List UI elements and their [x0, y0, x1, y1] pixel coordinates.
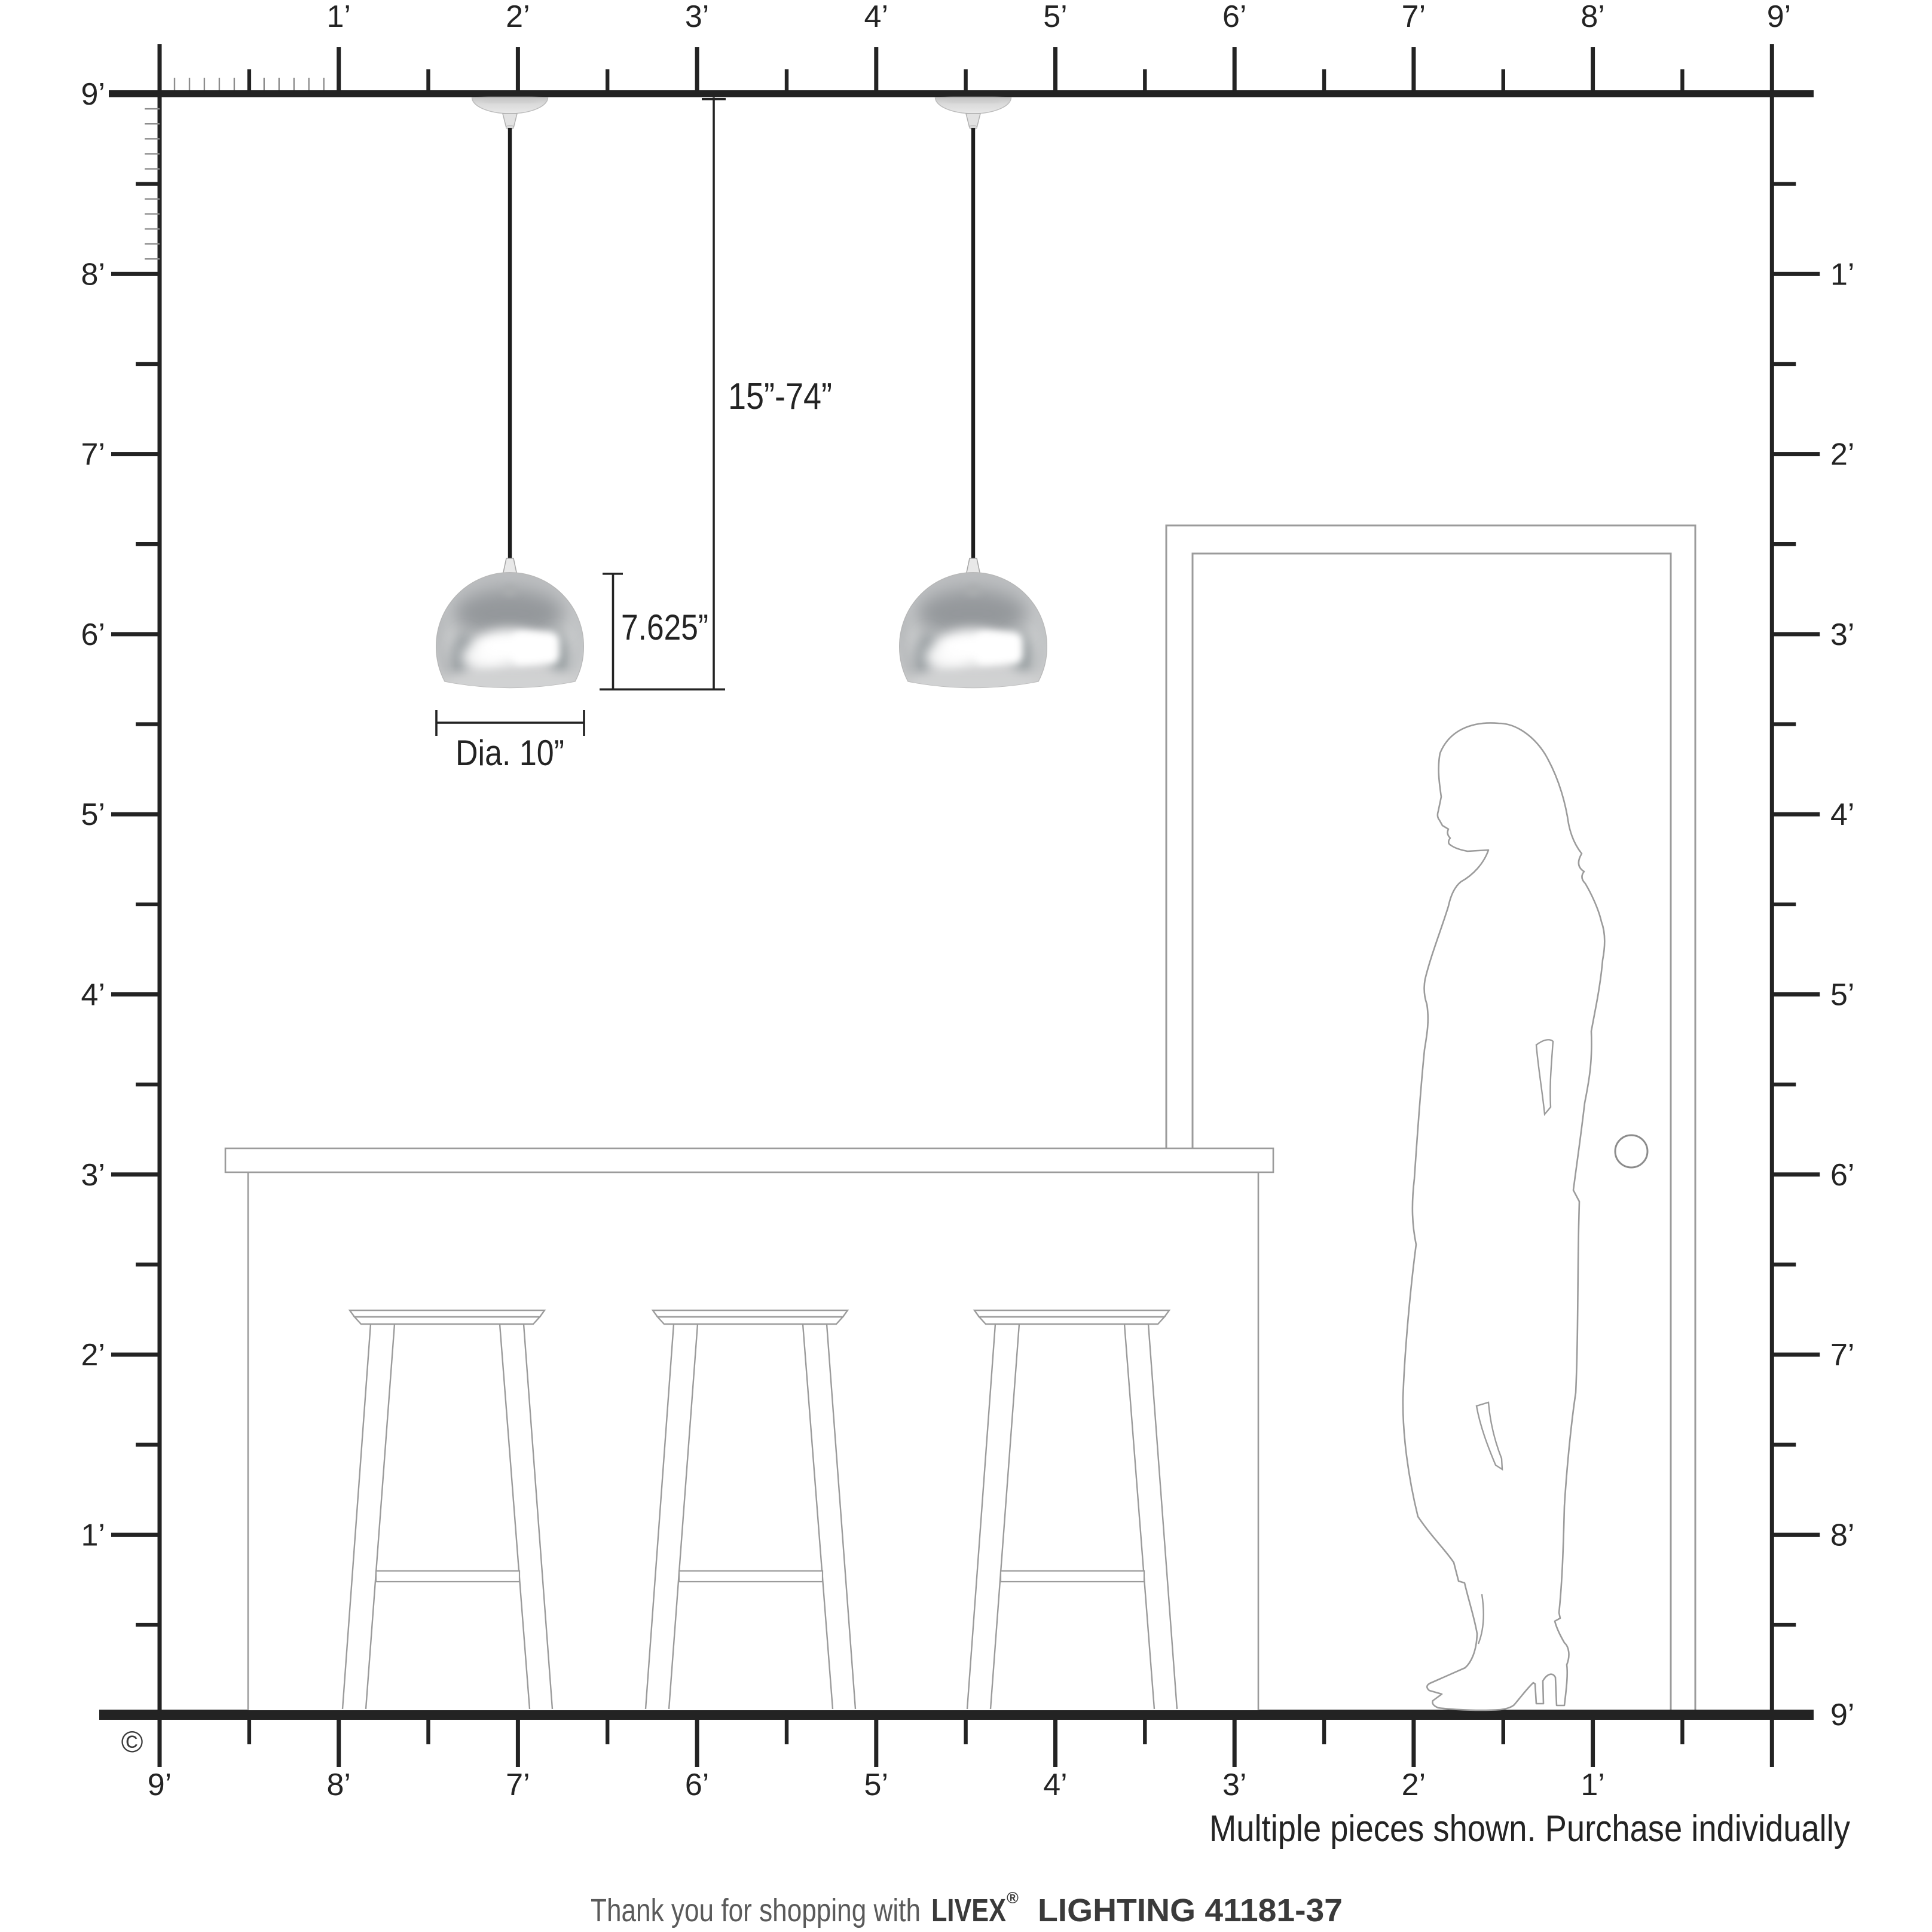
svg-text:4’: 4’ — [1830, 797, 1854, 832]
svg-text:5’: 5’ — [81, 797, 105, 832]
svg-text:Thank you for shopping with: Thank you for shopping with — [591, 1893, 921, 1928]
svg-text:3’: 3’ — [1222, 1768, 1246, 1802]
svg-text:6’: 6’ — [685, 1768, 709, 1802]
svg-text:®: ® — [1007, 1889, 1019, 1907]
svg-text:9’: 9’ — [1830, 1698, 1854, 1732]
svg-text:8’: 8’ — [1581, 0, 1604, 34]
svg-text:©: © — [121, 1725, 143, 1759]
svg-text:4’: 4’ — [864, 0, 888, 34]
svg-text:Dia. 10”: Dia. 10” — [456, 733, 564, 773]
svg-text:4’: 4’ — [1043, 1768, 1067, 1802]
svg-text:8’: 8’ — [81, 257, 105, 292]
svg-text:3’: 3’ — [1830, 617, 1854, 652]
svg-text:5’: 5’ — [864, 1768, 888, 1802]
svg-text:1’: 1’ — [326, 0, 350, 34]
svg-text:2’: 2’ — [1402, 1768, 1426, 1802]
svg-text:8’: 8’ — [326, 1768, 350, 1802]
svg-text:8’: 8’ — [1830, 1518, 1854, 1552]
svg-text:7’: 7’ — [506, 1768, 530, 1802]
svg-text:7.625”: 7.625” — [621, 607, 708, 647]
svg-text:3’: 3’ — [81, 1158, 105, 1193]
svg-text:Multiple pieces shown. Purcha: Multiple pieces shown. Purchase individu… — [1209, 1808, 1850, 1850]
svg-text:7’: 7’ — [1402, 0, 1426, 34]
svg-text:1’: 1’ — [81, 1518, 105, 1552]
svg-text:5’: 5’ — [1043, 0, 1067, 34]
svg-text:9’: 9’ — [1767, 0, 1791, 34]
svg-text:6’: 6’ — [1222, 0, 1246, 34]
svg-text:15”-74”: 15”-74” — [728, 376, 832, 417]
svg-text:3’: 3’ — [685, 0, 709, 34]
svg-text:2’: 2’ — [506, 0, 530, 34]
svg-text:6’: 6’ — [1830, 1158, 1854, 1193]
svg-text:1’: 1’ — [1830, 257, 1854, 292]
svg-text:LIGHTING 41181-37: LIGHTING 41181-37 — [1038, 1893, 1343, 1928]
svg-text:6’: 6’ — [81, 617, 105, 652]
svg-text:LIVEX: LIVEX — [931, 1893, 1006, 1928]
svg-text:7’: 7’ — [1830, 1338, 1854, 1372]
svg-text:2’: 2’ — [81, 1338, 105, 1372]
svg-text:9’: 9’ — [148, 1768, 172, 1802]
svg-text:5’: 5’ — [1830, 978, 1854, 1013]
svg-text:1’: 1’ — [1581, 1768, 1604, 1802]
svg-text:2’: 2’ — [1830, 438, 1854, 472]
svg-text:7’: 7’ — [81, 438, 105, 472]
svg-text:4’: 4’ — [81, 978, 105, 1013]
svg-text:9’: 9’ — [81, 77, 105, 112]
